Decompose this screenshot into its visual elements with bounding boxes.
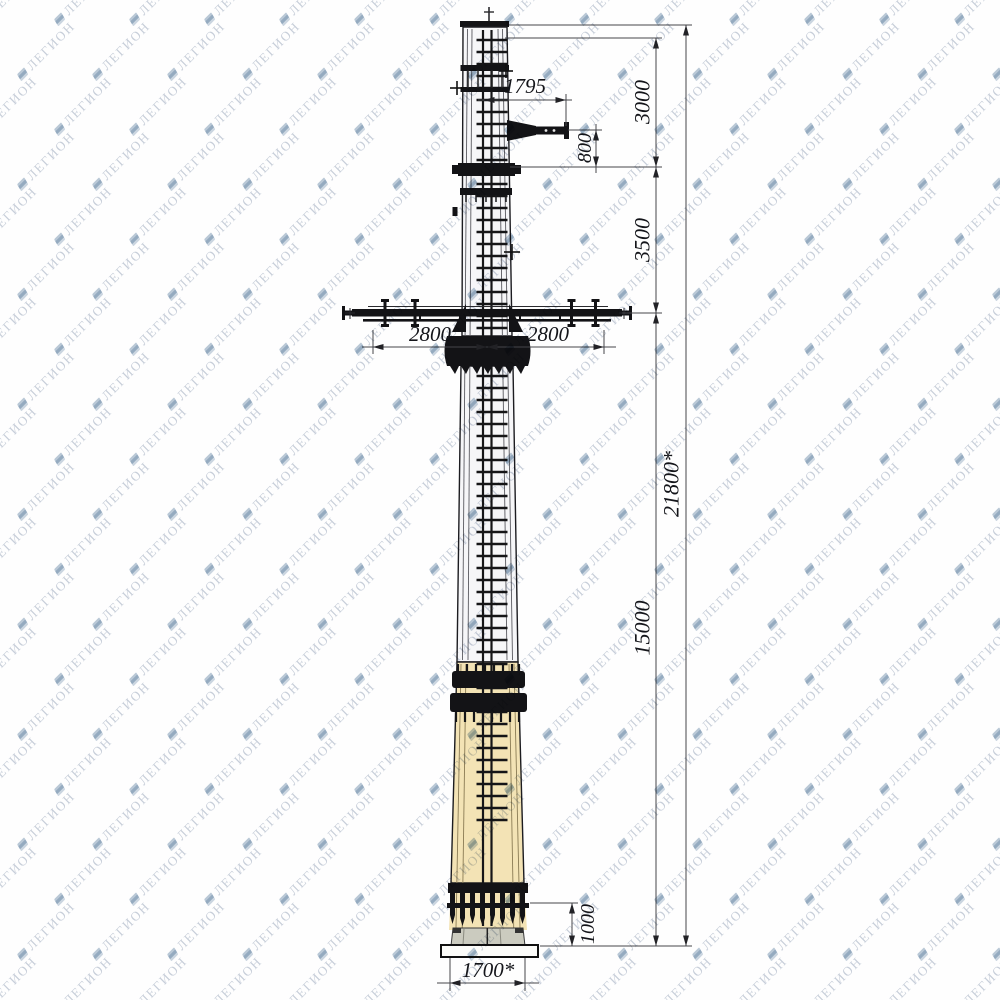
base-plate	[441, 945, 538, 957]
crossarm-collar	[445, 336, 531, 374]
dim-label-upper-mid-section: 3500	[630, 218, 655, 263]
crossarm	[342, 299, 632, 374]
dimension-lines	[362, 25, 692, 991]
pole-body	[449, 7, 527, 944]
dim-label-total-height: 21800*	[659, 451, 684, 517]
drawing-canvas: 1795 3000 800 3500 2800 2800 21800* 1500…	[0, 0, 1000, 1000]
lightning-rod	[484, 7, 494, 22]
dim-label-base-width: 1700*	[462, 958, 515, 982]
bolt-icon	[553, 129, 556, 132]
dim-label-base-section: 1000	[577, 904, 599, 944]
bolt-icon	[545, 129, 548, 132]
dimension-arrows	[373, 25, 689, 986]
dim-label-lower-section: 15000	[630, 601, 655, 656]
dim-label-crossarm-right: 2800	[527, 322, 570, 346]
dim-label-top-section: 3000	[630, 80, 655, 125]
dim-label-arm-drop: 800	[574, 133, 596, 163]
dim-label-arm-offset: 1795	[504, 74, 546, 98]
ground-wire-bracket	[507, 120, 569, 141]
pole-cap	[460, 21, 509, 27]
dimension-labels: 1795 3000 800 3500 2800 2800 21800* 1500…	[409, 74, 684, 982]
dim-label-crossarm-left: 2800	[409, 322, 452, 346]
pole-elevation-drawing: 1795 3000 800 3500 2800 2800 21800* 1500…	[0, 0, 1000, 1000]
attachment-collar	[458, 163, 515, 176]
